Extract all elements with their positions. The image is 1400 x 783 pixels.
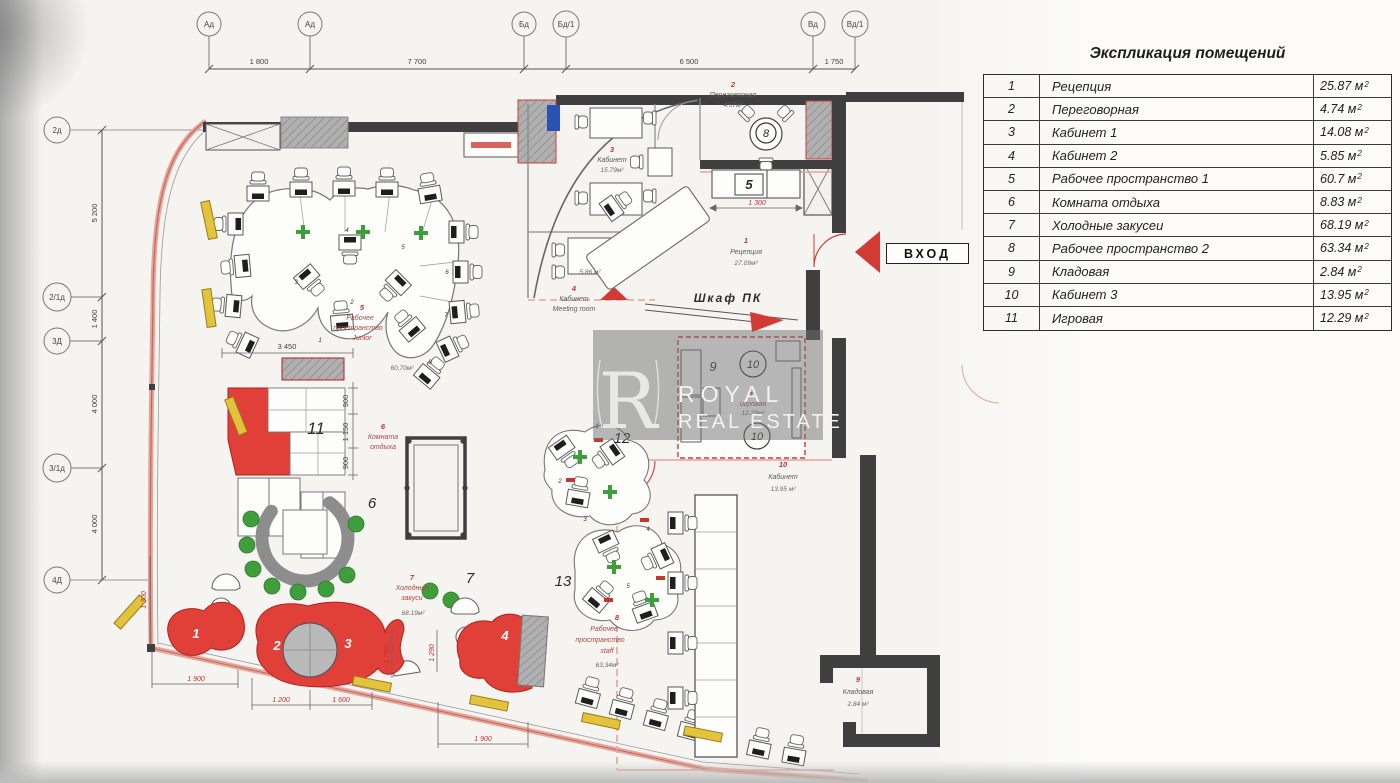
desk-number: 3 <box>583 517 587 523</box>
furniture-number: 3 <box>344 636 352 651</box>
room-number: 7 <box>410 573 415 582</box>
room-area-cell: 4.74 м2 <box>1314 98 1391 120</box>
room-name: пространство <box>575 637 624 644</box>
axis-label: Ад <box>305 20 315 29</box>
room-area: 68.19м² <box>402 610 426 617</box>
dimension-text: 1 200 <box>272 697 290 704</box>
meeting-table-10 <box>695 495 737 757</box>
room-name: отдыха <box>370 443 396 451</box>
room-area: 2.84 м² <box>846 701 869 708</box>
room-area: 60,70м² <box>391 365 415 372</box>
room-name: Meeting room <box>553 306 596 313</box>
furniture-number: 13 <box>555 573 572 590</box>
area-value: 63.34 м <box>1320 241 1363 255</box>
room-area-cell: 12.29 м2 <box>1314 307 1391 330</box>
axis-labels-left: 2д 2/1д 3Д 3/1д 4Д 5 200 1 400 4 000 4 0… <box>49 126 99 585</box>
room-area-cell: 60.7 м2 <box>1314 168 1391 190</box>
table-row: 3 Кабинет 1 14.08 м2 <box>984 121 1391 144</box>
table-row: 10 Кабинет 3 13.95 м2 <box>984 284 1391 307</box>
room-name: Рабочее <box>346 314 374 322</box>
table-row: 5 Рабочее пространство 1 60.7 м2 <box>984 168 1391 191</box>
room-number: 9 <box>856 675 861 684</box>
room-number: 4 <box>571 284 577 293</box>
room-number-cell: 1 <box>984 75 1040 97</box>
room-number-cell: 7 <box>984 214 1040 236</box>
room-name-cell: Кабинет 1 <box>1040 121 1314 143</box>
watermark-line2: REAL ESTATE <box>678 411 843 433</box>
axis-label: Бд/1 <box>558 20 575 29</box>
dimension-text: 1 300 <box>141 591 148 609</box>
dimension-text: 900 <box>341 395 350 408</box>
dimension-text: 6 500 <box>680 57 699 66</box>
axis-label: Ад <box>204 20 214 29</box>
room-name: Кладовая <box>843 688 874 696</box>
area-sup: 2 <box>1364 242 1368 251</box>
furniture-number: 11 <box>307 419 325 438</box>
room-name-cell: Кладовая <box>1040 261 1314 283</box>
area-value: 5.85 м <box>1320 149 1356 163</box>
room-number-cell: 4 <box>984 145 1040 167</box>
furniture-number: 5 <box>745 177 753 192</box>
room-area: 63,34м² <box>596 662 620 669</box>
furniture-number: 8 <box>763 128 770 140</box>
room-name: Рецепция <box>730 249 762 256</box>
furniture-number: 4 <box>500 628 509 643</box>
dimension-text: 1 150 <box>341 423 350 442</box>
room-area: 13.95 м² <box>771 486 797 493</box>
watermark: R ROYAL REAL ESTATE <box>593 330 843 447</box>
explication-title: Экспликация помещений <box>983 45 1392 63</box>
room-name: Кабинет <box>768 473 798 481</box>
room-number: 3 <box>610 145 615 154</box>
pool-table <box>404 438 467 538</box>
room-number-cell: 11 <box>984 307 1040 330</box>
dimension-text: 900 <box>341 457 350 470</box>
area-sup: 2 <box>1357 196 1361 205</box>
furniture-number: 2 <box>272 638 281 653</box>
area-sup: 2 <box>1364 219 1368 228</box>
room-area-cell: 14.08 м2 <box>1314 121 1391 143</box>
room-area: 4.57м² <box>723 102 743 109</box>
shaft-box <box>206 124 280 150</box>
cabinet-5 <box>712 170 800 198</box>
closet-block <box>806 101 832 159</box>
area-sup: 2 <box>1357 103 1361 112</box>
entrance-label: ВХОД <box>886 243 969 264</box>
pointer-triangle-icon <box>750 312 784 332</box>
area-value: 4.74 м <box>1320 102 1356 116</box>
dimension-text: 1 900 <box>187 676 205 683</box>
desk-number: 2 <box>557 479 562 485</box>
room-name-cell: Кабинет 2 <box>1040 145 1314 167</box>
room-name: пространство <box>333 325 382 332</box>
dimension-text: 3 450 <box>278 342 297 351</box>
room-name: закуси <box>400 595 422 602</box>
room-area-cell: 8.83 м2 <box>1314 191 1391 213</box>
room-name: staff <box>600 648 614 655</box>
room-name: Рабочее <box>590 625 618 633</box>
area-sup: 2 <box>1364 126 1368 135</box>
room-name: Комната <box>368 434 398 441</box>
dimension-text: 1 900 <box>474 736 492 743</box>
room-area-cell: 13.95 м2 <box>1314 284 1391 306</box>
area-sup: 2 <box>1364 288 1368 297</box>
table-row: 7 Холодные закусеи 68.19 м2 <box>984 214 1391 237</box>
shaft-box-right <box>804 163 832 215</box>
room-area-cell: 68.19 м2 <box>1314 214 1391 236</box>
table-row: 11 Игровая 12.29 м2 <box>984 307 1391 330</box>
room4-triangle-icon <box>600 287 628 300</box>
area-value: 12.29 м <box>1320 311 1363 325</box>
area-sup: 2 <box>1357 265 1361 274</box>
dimension-text: 4 000 <box>90 395 99 414</box>
dimension-text: 7 700 <box>408 57 427 66</box>
explication-panel: Экспликация помещений 1 Рецепция 25.87 м… <box>983 45 1392 331</box>
furniture-number: 1 <box>192 626 199 641</box>
room-name: Кабинет <box>559 295 589 303</box>
room-name: Переговорная <box>710 92 757 99</box>
window-block <box>281 117 348 148</box>
room-number: 2 <box>730 80 736 89</box>
explication-table: 1 Рецепция 25.87 м2 2 Переговорная 4.74 … <box>983 74 1392 331</box>
room-name-cell: Рабочее пространство 2 <box>1040 237 1314 259</box>
watermark-line1: ROYAL <box>678 381 784 407</box>
room-area: 27.09м² <box>734 260 759 267</box>
area-value: 68.19 м <box>1320 218 1363 232</box>
room-area: 5.86 м² <box>579 269 601 276</box>
watermark-logo: R <box>599 357 660 447</box>
entrance-text: ВХОД <box>904 247 951 261</box>
area-value: 13.95 м <box>1320 288 1363 302</box>
room-name-cell: Переговорная <box>1040 98 1314 120</box>
table-row: 1 Рецепция 25.87 м2 <box>984 75 1391 98</box>
room-number-cell: 10 <box>984 284 1040 306</box>
dimension-text: 1 750 <box>825 57 844 66</box>
axis-labels-top: Ад Ад Бд Бд/1 Вд Вд/1 1 800 7 700 6 500 … <box>204 20 864 66</box>
table-row: 6 Комната отдыха 8.83 м2 <box>984 191 1391 214</box>
room-area-cell: 63.34 м2 <box>1314 237 1391 259</box>
axis-label: 3/1д <box>49 464 65 473</box>
desk-number: 2 <box>349 300 354 306</box>
entrance-arrow-icon <box>855 231 880 273</box>
axis-label: 2д <box>52 126 61 135</box>
table-row: 4 Кабинет 2 5.85 м2 <box>984 145 1391 168</box>
dimension-text: 5 200 <box>90 204 99 223</box>
room-area-cell: 2.84 м2 <box>1314 261 1391 283</box>
axis-label: Бд <box>519 20 529 29</box>
room-area-cell: 25.87 м2 <box>1314 75 1391 97</box>
table-row: 2 Переговорная 4.74 м2 <box>984 98 1391 121</box>
room-number-cell: 5 <box>984 168 1040 190</box>
storage-walls <box>820 655 940 747</box>
furniture-number: 6 <box>368 495 377 512</box>
red-room-11 <box>228 358 345 475</box>
room-name-cell: Холодные закусеи <box>1040 214 1314 236</box>
axis-label: 3Д <box>52 337 62 346</box>
shkaf-pk-label: Шкаф ПК <box>694 291 763 305</box>
room-number-cell: 2 <box>984 98 1040 120</box>
dimension-text: 4 000 <box>90 515 99 534</box>
desk-number: 1 <box>318 338 321 344</box>
room-name-cell: Комната отдыха <box>1040 191 1314 213</box>
entrance-door-arc <box>814 234 846 267</box>
axis-label: 2/1д <box>49 293 65 302</box>
room-number-cell: 3 <box>984 121 1040 143</box>
dimension-text: 1 780 <box>384 646 391 664</box>
axis-grid-left <box>43 117 214 593</box>
axis-label: Вд/1 <box>847 20 864 29</box>
room-area: 15.79м² <box>601 167 625 174</box>
area-value: 8.83 м <box>1320 195 1356 209</box>
room-number-cell: 6 <box>984 191 1040 213</box>
area-value: 14.08 м <box>1320 125 1363 139</box>
room-name: Кабинет <box>597 156 627 164</box>
area-sup: 2 <box>1357 149 1361 158</box>
dimension-text: 1 290 <box>429 644 436 662</box>
dimension-text: 1 800 <box>250 57 269 66</box>
wall-label-box <box>464 133 518 157</box>
room-number-cell: 8 <box>984 237 1040 259</box>
room-name-cell: Рецепция <box>1040 75 1314 97</box>
room-name-cell: Рабочее пространство 1 <box>1040 168 1314 190</box>
room-number: 10 <box>779 460 788 469</box>
room-name: Холодные <box>395 584 429 592</box>
blue-marker <box>547 105 560 131</box>
room-number: 1 <box>744 236 748 245</box>
axis-grid-top <box>197 11 868 73</box>
shkaf-pk-leader <box>645 304 798 332</box>
room-name-cell: Игровая <box>1040 307 1314 330</box>
dimension-text: 1 600 <box>332 697 350 704</box>
room-number: 6 <box>381 422 386 431</box>
table-row: 9 Кладовая 2.84 м2 <box>984 261 1391 284</box>
furniture-number: 7 <box>466 570 475 587</box>
room-number-cell: 9 <box>984 261 1040 283</box>
room-name-cell: Кабинет 3 <box>1040 284 1314 306</box>
axis-label: 4Д <box>52 576 62 585</box>
dimension-text: 1 400 <box>90 310 99 329</box>
room-area-cell: 5.85 м2 <box>1314 145 1391 167</box>
room-name: Junior <box>351 335 372 342</box>
axis-label: Вд <box>808 20 818 29</box>
area-sup: 2 <box>1357 172 1361 181</box>
area-sup: 2 <box>1364 80 1368 89</box>
area-value: 60.7 м <box>1320 172 1356 186</box>
area-sup: 2 <box>1364 312 1368 321</box>
area-value: 2.84 м <box>1320 265 1356 279</box>
area-value: 25.87 м <box>1320 79 1363 93</box>
table-row: 8 Рабочее пространство 2 63.34 м2 <box>984 237 1391 260</box>
dimension-text: 1 300 <box>748 200 766 207</box>
screen-block <box>518 615 549 687</box>
